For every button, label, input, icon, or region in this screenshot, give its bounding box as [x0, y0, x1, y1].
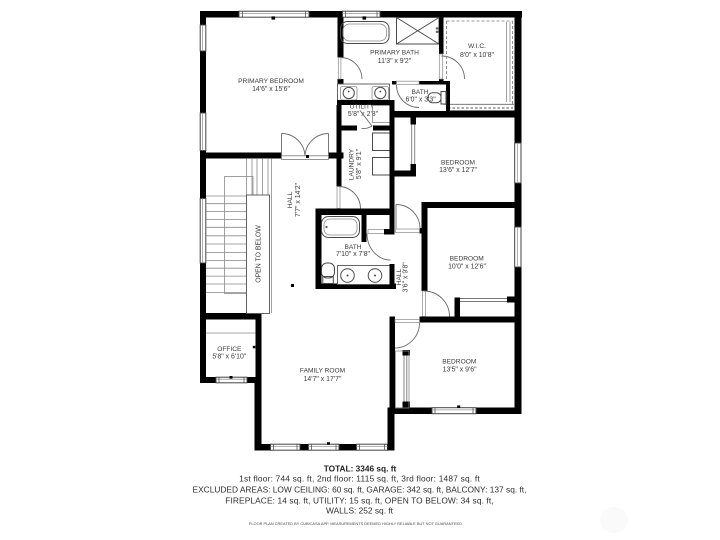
svg-text:W.I.C.: W.I.C.: [468, 43, 486, 50]
svg-text:13'5" x 9'6": 13'5" x 9'6": [443, 366, 478, 373]
svg-text:BATH: BATH: [411, 89, 428, 96]
svg-text:BEDROOM: BEDROOM: [441, 159, 475, 166]
svg-text:UTILITY: UTILITY: [350, 103, 375, 110]
svg-text:FLOOR PLAN CREATED BY CUBICASA: FLOOR PLAN CREATED BY CUBICASA APP. MEAS…: [249, 521, 463, 526]
svg-text:7'7" x 14'2": 7'7" x 14'2": [295, 182, 302, 217]
svg-text:5'8" x 9'1": 5'8" x 9'1": [356, 148, 363, 179]
svg-text:BEDROOM: BEDROOM: [442, 359, 476, 366]
svg-text:13'6" x 12'7": 13'6" x 12'7": [439, 167, 477, 174]
svg-text:PRIMARY BATH: PRIMARY BATH: [370, 50, 419, 57]
svg-text:3'6" x 9'8": 3'6" x 9'8": [403, 262, 410, 293]
svg-text:FIREPLACE: 14 sq. ft, UTILITY:: FIREPLACE: 14 sq. ft, UTILITY: 15 sq. ft…: [225, 495, 493, 505]
svg-text:8'0" x 10'8": 8'0" x 10'8": [460, 52, 495, 59]
svg-text:7'10" x 7'8": 7'10" x 7'8": [336, 251, 371, 258]
svg-text:LAUNDRY: LAUNDRY: [348, 148, 355, 180]
svg-text:BEDROOM: BEDROOM: [450, 256, 484, 263]
svg-text:FAMILY ROOM: FAMILY ROOM: [300, 368, 345, 375]
svg-text:TOTAL: 3346 sq. ft: TOTAL: 3346 sq. ft: [324, 464, 397, 474]
svg-text:OPEN TO BELOW: OPEN TO BELOW: [255, 225, 262, 283]
svg-text:EXCLUDED AREAS: LOW CEILING: 6: EXCLUDED AREAS: LOW CEILING: 60 sq. ft, …: [193, 484, 527, 494]
svg-text:BATH: BATH: [344, 244, 361, 251]
svg-text:HALL: HALL: [287, 191, 294, 208]
svg-text:OFFICE: OFFICE: [217, 346, 242, 353]
svg-text:5'8" x 6'10": 5'8" x 6'10": [212, 354, 247, 361]
svg-text:14'7" x 17'7": 14'7" x 17'7": [304, 376, 342, 383]
svg-text:14'6" x 15'6": 14'6" x 15'6": [252, 86, 290, 93]
svg-text:PRIMARY BEDROOM: PRIMARY BEDROOM: [238, 78, 304, 85]
svg-text:WALLS: 252 sq. ft: WALLS: 252 sq. ft: [326, 505, 394, 515]
svg-text:11'3" x 9'2": 11'3" x 9'2": [378, 58, 412, 65]
svg-text:10'0" x 12'6": 10'0" x 12'6": [448, 263, 486, 270]
svg-text:1st floor: 744 sq. ft, 2nd flo: 1st floor: 744 sq. ft, 2nd floor: 1115 s…: [239, 473, 480, 483]
